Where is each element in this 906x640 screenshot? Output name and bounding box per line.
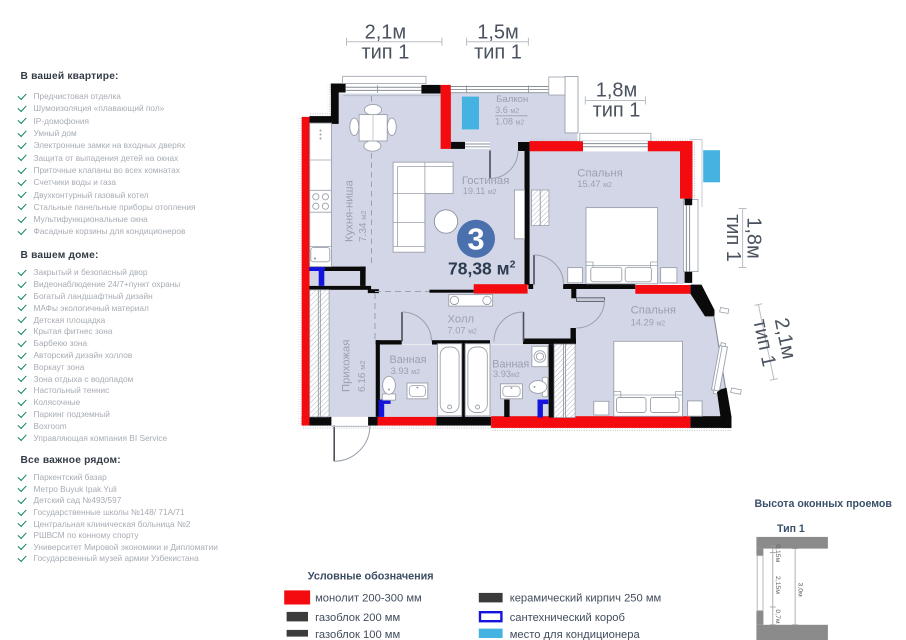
svg-text:место для кондиционера: место для кондиционера bbox=[510, 629, 641, 640]
svg-text:Спальня: Спальня bbox=[631, 305, 676, 317]
svg-text:Холл: Холл bbox=[448, 314, 475, 326]
svg-text:тип 1: тип 1 bbox=[722, 214, 744, 262]
svg-text:2,15м: 2,15м bbox=[774, 576, 781, 594]
svg-text:3,0м: 3,0м bbox=[797, 583, 804, 597]
svg-text:керамический кирпич 250 мм: керамический кирпич 250 мм bbox=[510, 593, 662, 605]
svg-text:2,1м: 2,1м bbox=[365, 22, 407, 44]
svg-text:7.34 м2: 7.34 м2 bbox=[358, 210, 369, 242]
svg-text:Высота оконных проемов: Высота оконных проемов bbox=[755, 498, 893, 510]
svg-text:Балкон: Балкон bbox=[496, 94, 528, 105]
svg-text:Тип 1: Тип 1 bbox=[777, 523, 805, 535]
svg-text:Ванная: Ванная bbox=[390, 354, 427, 366]
svg-text:Кухня-ниша: Кухня-ниша bbox=[343, 179, 355, 242]
svg-text:тип 1: тип 1 bbox=[361, 42, 409, 64]
svg-text:монолит 200-300 мм: монолит 200-300 мм bbox=[315, 593, 422, 605]
svg-text:тип 1: тип 1 bbox=[593, 100, 641, 122]
svg-text:0,7м: 0,7м bbox=[774, 609, 781, 623]
svg-text:Спальня: Спальня bbox=[577, 168, 622, 180]
svg-text:Условные обозначения: Условные обозначения bbox=[308, 571, 434, 583]
svg-text:сантехнический короб: сантехнический короб bbox=[510, 612, 625, 624]
svg-text:газоблок 200 мм: газоблок 200 мм bbox=[315, 612, 400, 624]
svg-text:1,8м: 1,8м bbox=[596, 79, 638, 101]
svg-text:1,5м: 1,5м bbox=[477, 22, 519, 44]
svg-text:78,38 м2: 78,38 м2 bbox=[448, 259, 516, 279]
svg-text:Гостиная: Гостиная bbox=[462, 175, 509, 187]
svg-text:0,15м: 0,15м bbox=[774, 544, 781, 562]
svg-text:тип 1: тип 1 bbox=[474, 42, 522, 64]
svg-text:газоблок 100 мм: газоблок 100 мм bbox=[315, 629, 400, 640]
svg-text:1,8м: 1,8м bbox=[743, 217, 765, 259]
svg-text:Прихожая: Прихожая bbox=[340, 340, 352, 392]
svg-text:3: 3 bbox=[467, 222, 484, 257]
svg-text:6.16 м2: 6.16 м2 bbox=[357, 360, 368, 392]
